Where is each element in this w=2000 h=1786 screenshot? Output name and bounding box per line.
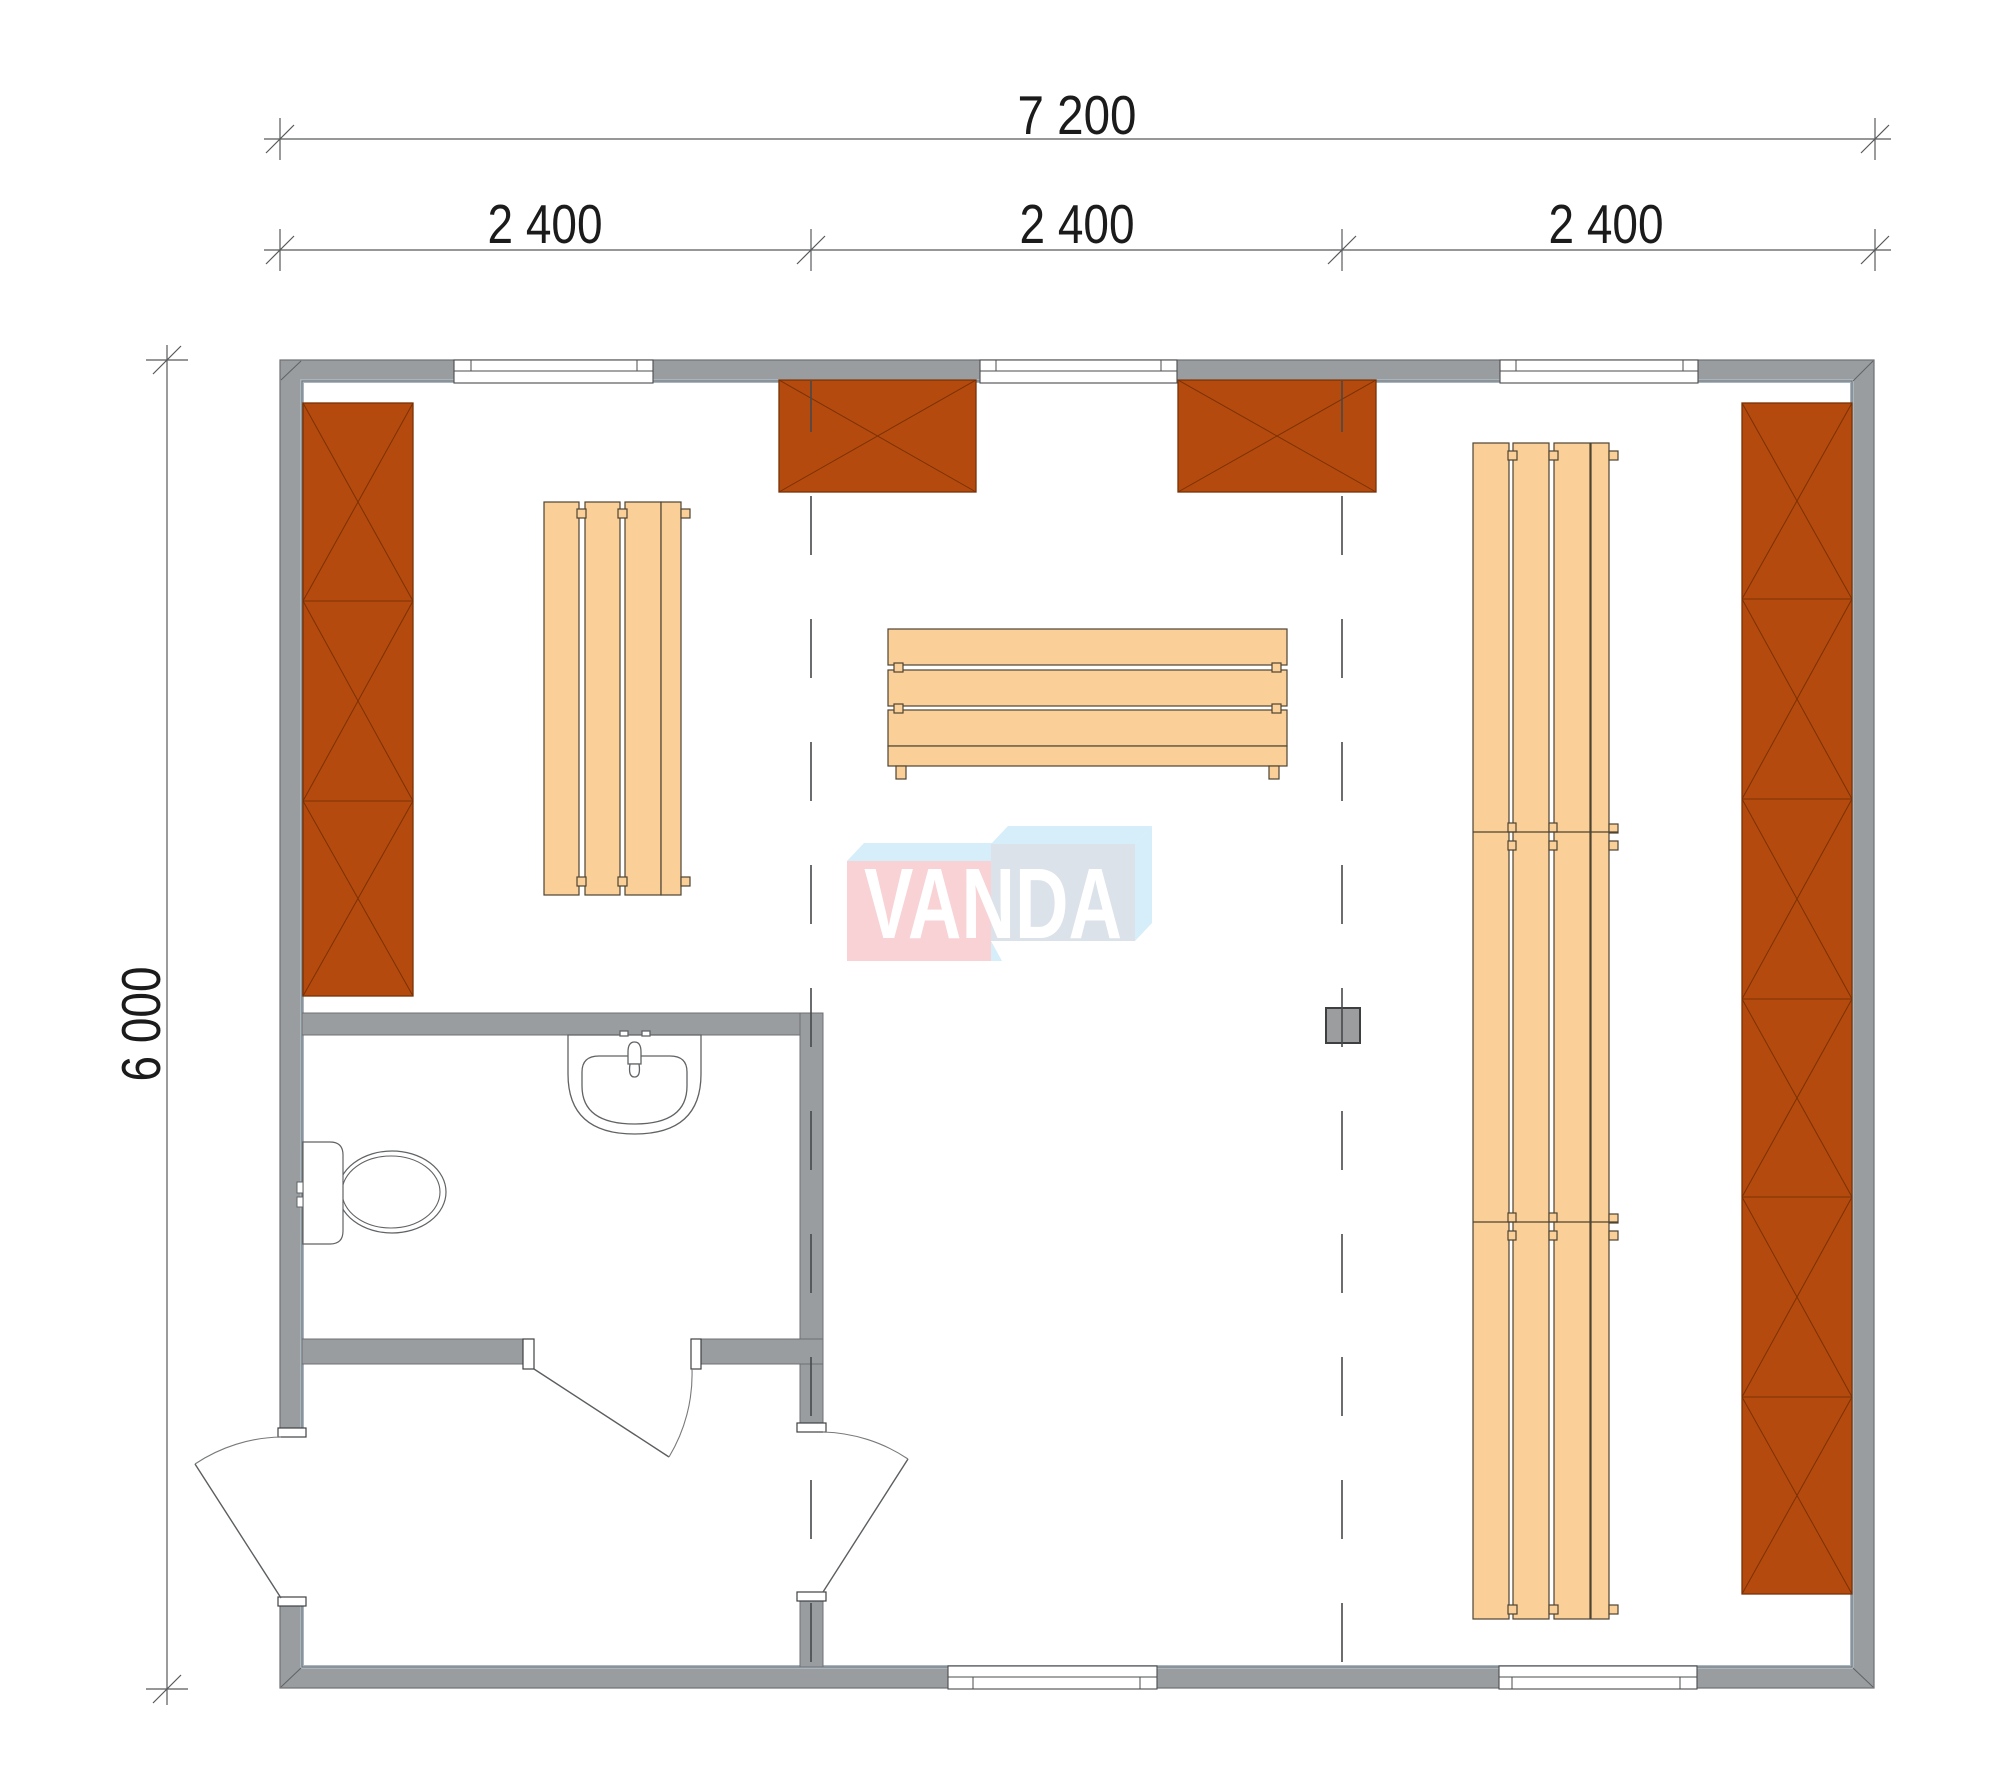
svg-text:2 400: 2 400 [1549,193,1664,255]
svg-text:6 000: 6 000 [110,967,172,1082]
svg-text:VANDA: VANDA [864,848,1122,960]
svg-text:2 400: 2 400 [1020,193,1135,255]
svg-text:7 200: 7 200 [1018,84,1137,146]
svg-text:2 400: 2 400 [488,193,603,255]
